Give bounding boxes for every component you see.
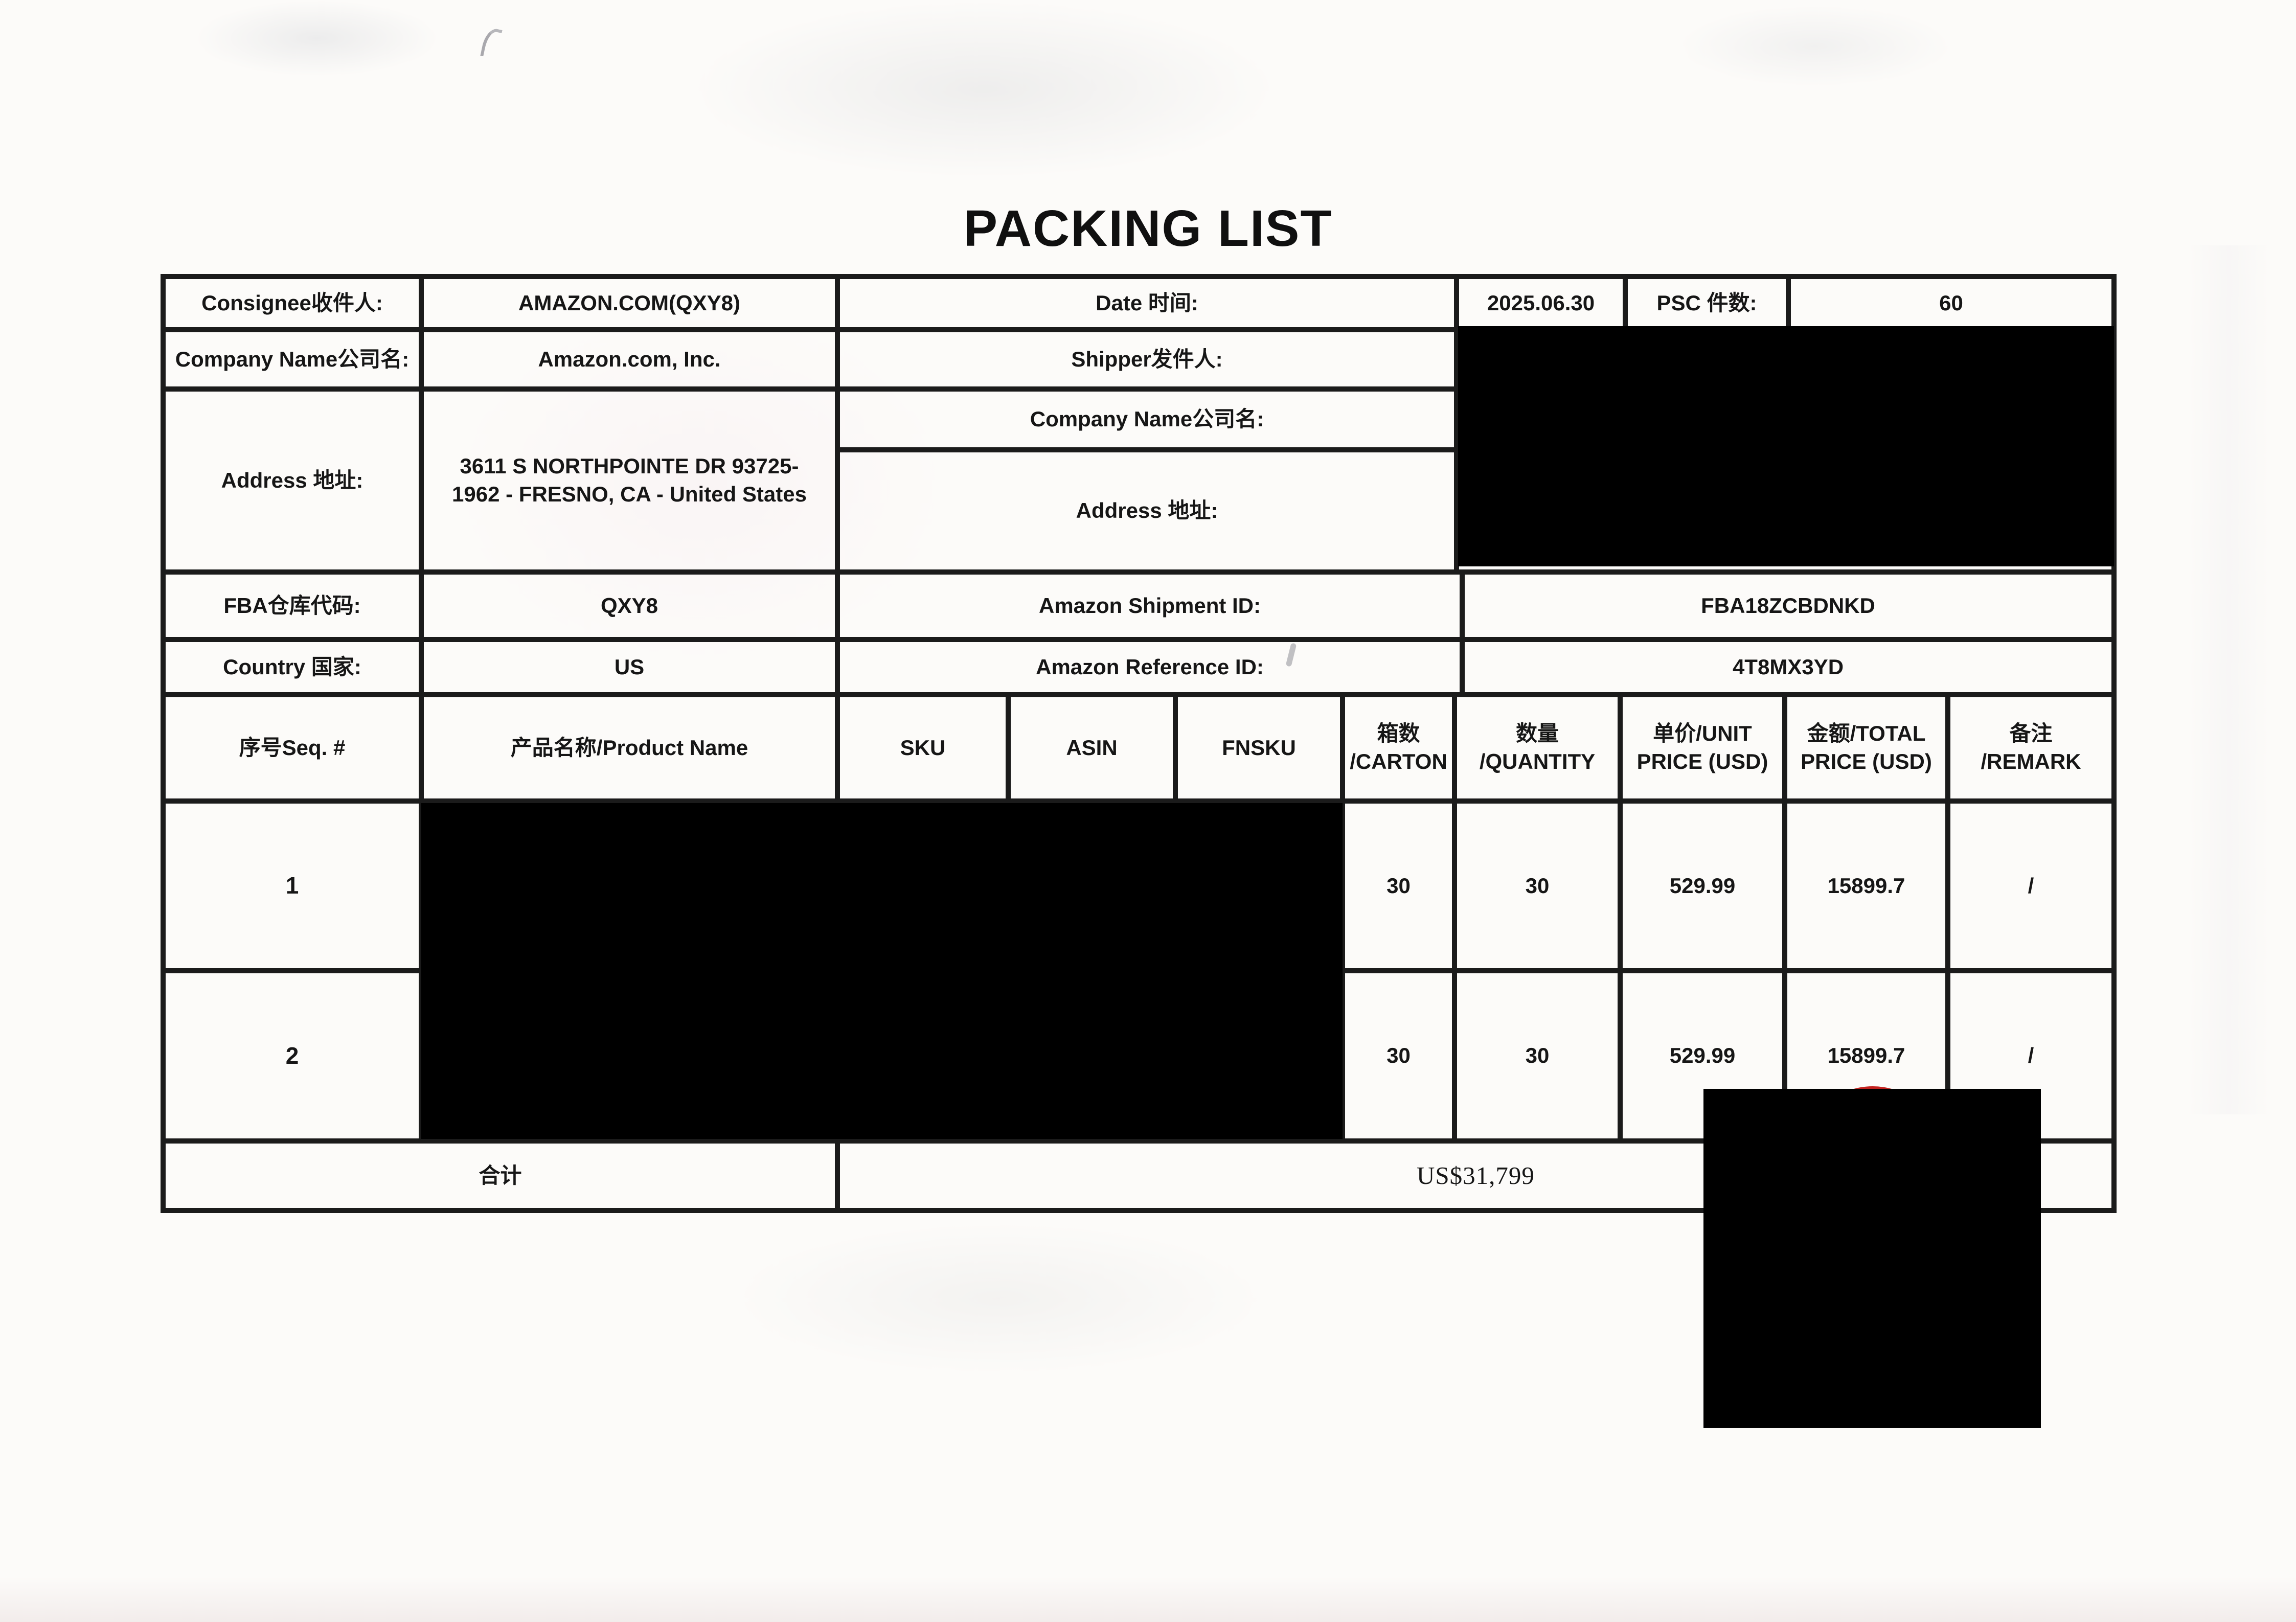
row1-remark-cell: / [1948, 801, 2114, 971]
row1-unit-price-cell: 529.99 [1620, 801, 1785, 971]
psc-value-cell: 60 [1788, 277, 2114, 330]
date-value-cell: 2025.06.30 [1457, 277, 1625, 330]
header-remark-line1: 备注 [2009, 720, 2052, 748]
header-sku-cell: SKU [837, 695, 1008, 801]
scan-smudge [194, 0, 440, 77]
shipper-company-label-cell: Company Name公司名: [837, 389, 1457, 450]
packing-list-scan: PACKING LIST Consignee收件人: AMAZON.COM(QX… [0, 0, 2296, 1622]
company-label-cell: Company Name公司名: [163, 330, 421, 389]
row1-carton-cell: 30 [1343, 801, 1454, 971]
header-unit-price-cell: 单价/UNIT PRICE (USD) [1620, 695, 1785, 801]
reference-id-label-cell: Amazon Reference ID: [837, 639, 1462, 695]
fba-value-cell: QXY8 [421, 572, 837, 639]
header-product-name-cell: 产品名称/Product Name [421, 695, 837, 801]
row2-seq-cell: 2 [163, 971, 421, 1141]
header-total-price-line1: 金额/TOTAL [1807, 720, 1926, 748]
scan-noise-band [0, 1577, 2296, 1622]
scan-smudge [731, 1222, 1268, 1375]
consignee-value-cell: AMAZON.COM(QXY8) [421, 277, 837, 330]
header-seq-cell: 序号Seq. # [163, 695, 421, 801]
redaction-box-product-details [421, 803, 1343, 1139]
total-label-cell: 合计 [163, 1141, 837, 1210]
pen-mark [480, 27, 502, 59]
shipment-id-value-cell: FBA18ZCBDNKD [1462, 572, 2114, 639]
header-carton-line2: /CARTON [1350, 748, 1447, 776]
row1-quantity-cell: 30 [1454, 801, 1620, 971]
shipper-address-label-cell: Address 地址: [837, 450, 1457, 572]
scan-smudge [690, 0, 1278, 179]
header-asin-cell: ASIN [1008, 695, 1175, 801]
shipper-label-cell: Shipper发件人: [837, 330, 1457, 389]
reference-id-value-cell: 4T8MX3YD [1462, 639, 2114, 695]
row1-total-price-cell: 15899.7 [1785, 801, 1948, 971]
row2-quantity-cell: 30 [1454, 971, 1620, 1141]
address-line-2: 1962 - FRESNO, CA - United States [452, 481, 807, 509]
header-unit-price-line2: PRICE (USD) [1637, 748, 1768, 776]
header-remark-line2: /REMARK [1981, 748, 2081, 776]
header-carton-line1: 箱数 [1377, 720, 1420, 748]
consignee-label-cell: Consignee收件人: [163, 277, 421, 330]
header-total-price-cell: 金额/TOTAL PRICE (USD) [1785, 695, 1948, 801]
date-label-cell: Date 时间: [837, 277, 1457, 330]
country-label-cell: Country 国家: [163, 639, 421, 695]
redaction-box-stamp-area [1703, 1089, 2041, 1428]
shipment-id-label-cell: Amazon Shipment ID: [837, 572, 1462, 639]
address-value-cell: 3611 S NORTHPOINTE DR 93725- 1962 - FRES… [421, 389, 837, 572]
header-quantity-cell: 数量 /QUANTITY [1454, 695, 1620, 801]
address-line-1: 3611 S NORTHPOINTE DR 93725- [460, 452, 799, 481]
scan-smudge [2188, 245, 2270, 1114]
company-value-cell: Amazon.com, Inc. [421, 330, 837, 389]
scan-smudge [1677, 5, 1953, 87]
header-carton-cell: 箱数 /CARTON [1343, 695, 1454, 801]
address-label-cell: Address 地址: [163, 389, 421, 572]
header-fnsku-cell: FNSKU [1175, 695, 1343, 801]
psc-label-cell: PSC 件数: [1625, 277, 1788, 330]
header-remark-cell: 备注 /REMARK [1948, 695, 2114, 801]
country-value-cell: US [421, 639, 837, 695]
header-total-price-line2: PRICE (USD) [1801, 748, 1932, 776]
header-unit-price-line1: 单价/UNIT [1653, 720, 1752, 748]
redaction-box-shipper-info [1458, 326, 2114, 566]
page-title: PACKING LIST [0, 199, 2296, 258]
fba-label-cell: FBA仓库代码: [163, 572, 421, 639]
row1-seq-cell: 1 [163, 801, 421, 971]
row2-carton-cell: 30 [1343, 971, 1454, 1141]
header-quantity-line2: /QUANTITY [1480, 748, 1595, 776]
header-quantity-line1: 数量 [1516, 720, 1559, 748]
